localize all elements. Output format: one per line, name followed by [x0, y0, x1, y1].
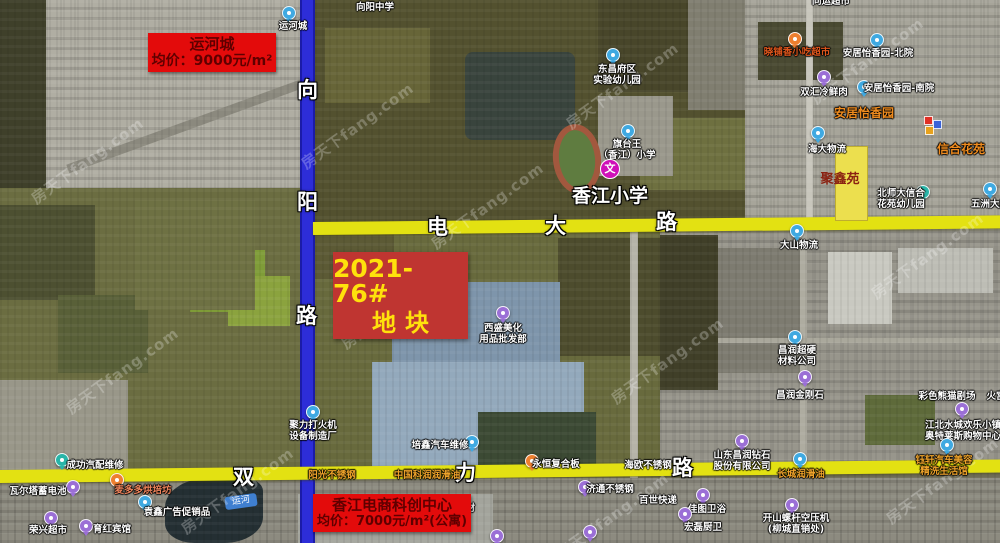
poi-label-line: 聚力打火机	[289, 420, 337, 431]
poi-juli-lighter-factory[interactable]: 聚力打火机设备制造厂	[289, 420, 337, 442]
poi-pin-xisheng-beauty-supplies[interactable]	[496, 306, 510, 320]
poi-label-line: 旗台王	[598, 139, 655, 150]
poi-label-line: 百世快递	[639, 495, 677, 506]
poi-label-line: 五洲大厦	[971, 199, 1000, 210]
poi-jitong-stainless[interactable]: 济通不锈钢	[586, 484, 634, 495]
parcel-code: 2021-76#	[333, 256, 468, 306]
school-icon[interactable]: 文	[600, 159, 620, 179]
poi-label-line: 实验幼儿园	[593, 75, 641, 86]
price-label-xiangjiang[interactable]: 香江电商科创中心 均价：7000元/m²(公寓)	[313, 494, 471, 532]
poi-label-line: 昌润超硬	[778, 345, 816, 356]
poi-label-line: 江北水城欢乐小镇	[925, 420, 1000, 431]
poi-label-line: 设备制造厂	[289, 431, 337, 442]
poi-anju-yixiangyuan[interactable]: 安居怡香园	[834, 106, 894, 120]
poi-honglei-kitchen-bath[interactable]: 宏磊厨卫	[684, 522, 722, 533]
listing-marker[interactable]	[924, 116, 933, 125]
estate-price: 均价：9000元/m²	[151, 53, 273, 70]
poi-pin-unlabeled-pin-1[interactable]	[490, 529, 504, 543]
poi-label-line: 西盛美化	[479, 323, 527, 334]
estate-price: 均价：7000元/m²(公寓)	[316, 514, 468, 530]
price-label-yunhecheng[interactable]: 运河城 均价：9000元/m²	[148, 33, 276, 72]
poi-label-line: 用品批发部	[479, 334, 527, 345]
estate-name: 香江电商科创中心	[316, 496, 468, 514]
poi-pin-yuxuan-car-beauty[interactable]	[940, 438, 954, 452]
poi-label-line: 袁鑫广告促销品	[144, 507, 211, 518]
poi-label-line: 开山螺杆空压机	[763, 513, 830, 524]
poi-shuanghui-meat[interactable]: 双汇冷鲜肉	[800, 87, 848, 98]
poi-xiangyang-middle-school[interactable]: 向阳中学	[356, 2, 394, 13]
poi-pin-wuzhou-building[interactable]	[983, 182, 997, 196]
poi-beishida-xinhe-kindergarten[interactable]: 北师大信合花苑幼儿园	[877, 188, 925, 210]
poi-label-line: 昌润金刚石	[776, 390, 824, 401]
poi-label-line: 大山物流	[780, 240, 818, 251]
poi-jiatu-bathroom[interactable]: 佳图卫浴	[688, 504, 726, 515]
poi-pin-haida-logistics[interactable]	[811, 126, 825, 140]
poi-label-line: 钰轩汽车美容	[915, 455, 972, 466]
poi-waerta-battery[interactable]: 瓦尔塔蓄电池	[9, 486, 66, 497]
poi-pin-shuanghui-meat[interactable]	[817, 70, 831, 84]
poi-label-line: 荣兴超市	[29, 525, 67, 536]
poi-label-line: 培鑫汽车维修	[411, 440, 468, 451]
poi-anju-yixiangyuan-south[interactable]: 安居怡香园-南院	[864, 83, 934, 94]
poi-pin-anju-yixiangyuan-north[interactable]	[870, 33, 884, 47]
satellite-map: 向 阳 路 电 大 路 双 力 路 聚鑫苑 运河 房天下fang.com房天下f…	[0, 0, 1000, 543]
poi-chenggong-auto-parts[interactable]: 成功汽配维修	[66, 460, 123, 471]
poi-baishi-express[interactable]: 百世快递	[639, 495, 677, 506]
poi-yuxuan-car-beauty[interactable]: 钰轩汽车美容精洗生活馆	[915, 455, 972, 477]
poi-label-line: 花苑幼儿园	[877, 199, 925, 210]
parcel-type-label: 地块	[363, 311, 438, 335]
poi-pin-yunhecheng-pin[interactable]	[282, 6, 296, 20]
poi-jiangbei-shuicheng-outlets[interactable]: 江北水城欢乐小镇奥特莱斯购物中心	[925, 420, 1000, 442]
poi-huogong[interactable]: 火宫	[986, 391, 1000, 402]
poi-caise-panda-theater[interactable]: 彩色熊猫剧场	[918, 391, 975, 402]
poi-label-line: 安居怡香园	[834, 106, 894, 120]
poi-dongchangfu-kindergarten[interactable]: 东昌府区实验幼儿园	[593, 64, 641, 86]
listing-marker[interactable]	[933, 120, 942, 129]
poi-pin-dongchangfu-kindergarten[interactable]	[606, 48, 620, 62]
poi-tongyun-supermarket[interactable]: 同运超市	[812, 0, 850, 7]
poi-pin-qitaiwang-xiangjiang-school[interactable]	[621, 124, 635, 138]
poi-xinhe-huayuan[interactable]: 信合花苑	[937, 142, 985, 156]
estate-name: 运河城	[151, 35, 273, 53]
poi-pin-shandong-changrun-diamond-co[interactable]	[735, 434, 749, 448]
poi-pin-juli-lighter-factory[interactable]	[306, 405, 320, 419]
poi-pin-honglei-kitchen-bath[interactable]	[678, 507, 692, 521]
poi-pin-changcheng-lubricant[interactable]	[793, 452, 807, 466]
poi-pin-unlabeled-pin-2[interactable]	[583, 525, 597, 539]
poi-label-line: 奥特莱斯购物中心	[925, 431, 1000, 442]
poi-label-line: 山东昌润钻石	[713, 450, 770, 461]
poi-peixin-auto-repair[interactable]: 培鑫汽车维修	[411, 440, 468, 451]
poi-pin-jiangbei-shuicheng-outlets[interactable]	[955, 402, 969, 416]
poi-label-line: 晓铺香小吃超市	[764, 47, 831, 58]
poi-label-line: 永恒复合板	[532, 459, 580, 470]
poi-shandong-changrun-diamond-co[interactable]: 山东昌润钻石股份有限公司	[713, 450, 770, 472]
poi-label-line: 宏磊厨卫	[684, 522, 722, 533]
poi-label-line: 海欧不锈钢	[624, 460, 672, 471]
poi-label-line: 中国科润润滑油	[394, 470, 461, 481]
poi-yuanxin-ads[interactable]: 袁鑫广告促销品	[144, 507, 211, 518]
poi-haida-logistics[interactable]: 海大物流	[808, 144, 846, 155]
poi-dashan-logistics[interactable]: 大山物流	[780, 240, 818, 251]
listing-marker[interactable]	[925, 126, 934, 135]
poi-label-line: 东昌府区	[593, 64, 641, 75]
poi-label-line: 安居怡香园-南院	[864, 83, 934, 94]
poi-haiou-stainless[interactable]: 海欧不锈钢	[624, 460, 672, 471]
poi-rongxing-supermarket[interactable]: 荣兴超市	[29, 525, 67, 536]
poi-xiangjiang-primary-school[interactable]: 香江小学	[572, 181, 648, 208]
poi-label-line: 火宫	[986, 391, 1000, 402]
poi-layer: 向阳中学运河城同运超市晓铺香小吃超市安居怡香园-北院双汇冷鲜肉安居怡香园-南院安…	[0, 0, 1000, 543]
poi-changrun-materials[interactable]: 昌润超硬材料公司	[778, 345, 816, 367]
poi-label-line: 双汇冷鲜肉	[800, 87, 848, 98]
poi-yuhong-hotel[interactable]: 育红宾馆	[93, 524, 131, 535]
poi-pin-dashan-logistics[interactable]	[790, 224, 804, 238]
poi-label-line: 彩色熊猫剧场	[918, 391, 975, 402]
poi-pin-rongxing-supermarket[interactable]	[44, 511, 58, 525]
poi-changcheng-lubricant[interactable]: 长城润滑油	[777, 469, 825, 480]
poi-xisheng-beauty-supplies[interactable]: 西盛美化用品批发部	[479, 323, 527, 345]
poi-pin-xiaopuxiang-snack-market[interactable]	[788, 32, 802, 46]
poi-label-line: 济通不锈钢	[586, 484, 634, 495]
poi-kaishan-compressor[interactable]: 开山螺杆空压机(柳城直销处)	[763, 513, 830, 535]
poi-label-line: 成功汽配维修	[66, 460, 123, 471]
poi-label-line: 材料公司	[778, 356, 816, 367]
poi-label-line: (柳城直销处)	[763, 524, 830, 535]
parcel-2021-76[interactable]: 2021-76# 地块	[333, 252, 468, 339]
poi-pin-jiatu-bathroom[interactable]	[696, 488, 710, 502]
poi-changrun-diamond[interactable]: 昌润金刚石	[776, 390, 824, 401]
poi-yunhecheng-pin[interactable]: 运河城	[279, 21, 308, 32]
poi-label-line: 阳光不锈钢	[308, 470, 356, 481]
poi-label-line: 信合花苑	[937, 142, 985, 156]
poi-label-line: 向阳中学	[356, 2, 394, 13]
poi-yangguang-stainless[interactable]: 阳光不锈钢	[308, 470, 356, 481]
poi-label-line: 佳图卫浴	[688, 504, 726, 515]
poi-label-line: 瓦尔塔蓄电池	[9, 486, 66, 497]
poi-label-line: 股份有限公司	[713, 461, 770, 472]
poi-label-line: 长城润滑油	[777, 469, 825, 480]
poi-xiaopuxiang-snack-market[interactable]: 晓铺香小吃超市	[764, 47, 831, 58]
poi-wuzhou-building[interactable]: 五洲大厦	[971, 199, 1000, 210]
poi-label-line: 北师大信合	[877, 188, 925, 199]
poi-pin-kaishan-compressor[interactable]	[785, 498, 799, 512]
poi-pin-changrun-diamond[interactable]	[798, 370, 812, 384]
poi-label-line: 运河城	[279, 21, 308, 32]
poi-pin-yuhong-hotel[interactable]	[79, 519, 93, 533]
poi-pin-changrun-materials[interactable]	[788, 330, 802, 344]
poi-pin-waerta-battery[interactable]	[66, 480, 80, 494]
poi-label-line: 同运超市	[812, 0, 850, 7]
poi-label-line: 育红宾馆	[93, 524, 131, 535]
poi-qitaiwang-xiangjiang-school[interactable]: 旗台王（香江）小学	[598, 139, 655, 161]
poi-label-line: 海大物流	[808, 144, 846, 155]
poi-anju-yixiangyuan-north[interactable]: 安居怡香园-北院	[843, 48, 913, 59]
poi-label-line: 精洗生活馆	[915, 466, 972, 477]
poi-zhongguo-kerun-lubricant[interactable]: 中国科润润滑油	[394, 470, 461, 481]
poi-yongheng-composite-board[interactable]: 永恒复合板	[532, 459, 580, 470]
poi-label-line: 安居怡香园-北院	[843, 48, 913, 59]
